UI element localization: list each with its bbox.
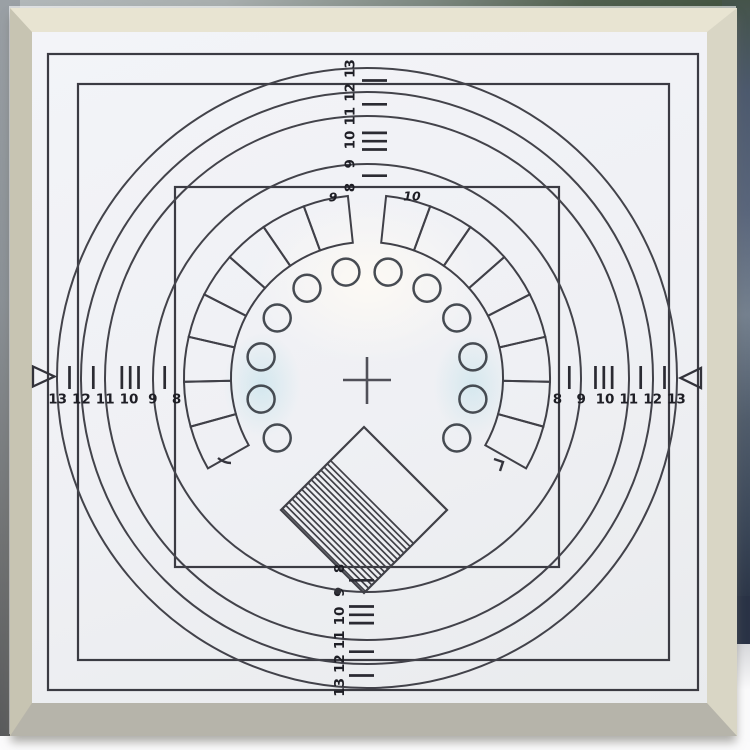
scale-number: 11	[343, 107, 359, 126]
scale-number: 8	[343, 183, 359, 192]
wedge-segment	[204, 257, 265, 316]
scale-number: 8	[172, 392, 181, 408]
ring-dot	[248, 343, 275, 370]
wedge-segment	[184, 337, 235, 382]
ring-dot	[332, 259, 359, 286]
band-end-mark-right	[494, 459, 503, 471]
dot-ring	[248, 259, 487, 452]
wedge-segment	[264, 206, 320, 265]
ring-dot	[294, 275, 321, 302]
left-pointer-icon	[33, 367, 55, 387]
scale-number: 8	[553, 392, 562, 408]
wedge-segment	[469, 257, 530, 316]
ring-dot	[459, 343, 486, 370]
ring-dot	[264, 305, 291, 332]
scale-number: 13	[332, 678, 348, 697]
left-numbers: 1312111098	[48, 392, 181, 408]
registration-dot	[335, 588, 342, 595]
hatch-line	[268, 481, 462, 675]
ring-dot	[459, 386, 486, 413]
top-numbers: 1312111098	[343, 59, 359, 192]
ring-dot	[248, 386, 275, 413]
ring-dot	[414, 275, 441, 302]
bottom-ticks	[349, 580, 374, 675]
scale-number: 11	[96, 392, 115, 408]
left-ticks	[70, 366, 165, 389]
scale-number: 10	[120, 392, 139, 408]
right-numbers: 8910111213	[553, 392, 686, 408]
scale-number: 13	[343, 59, 359, 78]
scale-number: 8	[332, 564, 348, 573]
scale-bottom: 8910111213	[332, 564, 374, 697]
scale-number: 13	[667, 392, 686, 408]
top-ticks	[362, 81, 387, 176]
scale-number: 10	[596, 392, 615, 408]
diamond-hatching	[268, 398, 462, 688]
ring-dot	[264, 425, 291, 452]
center-crosshair	[343, 357, 391, 404]
wedge-segment	[184, 381, 236, 427]
scale-number: 10	[343, 131, 359, 150]
wedge-segment	[381, 196, 430, 250]
scale-right: 8910111213	[553, 366, 701, 408]
scale-number: 12	[332, 654, 348, 673]
hatch-line	[268, 404, 462, 598]
scale-top: 1312111098	[343, 59, 388, 192]
ring-dot	[443, 305, 470, 332]
scale-number: 12	[643, 392, 662, 408]
wedge-segment	[500, 337, 551, 382]
scale-number: 11	[332, 630, 348, 649]
hatch-line	[268, 468, 462, 662]
ring-dot	[443, 425, 470, 452]
scale-number: 10	[332, 607, 348, 626]
wedge-segment	[498, 381, 550, 427]
scale-number: 11	[619, 392, 638, 408]
right-ticks	[569, 366, 664, 389]
wedge-segment	[414, 206, 470, 265]
hatch-line	[268, 424, 462, 618]
test-chart-linework: 1312111098 8910111213 1312111098 8910111…	[0, 0, 750, 750]
hatch-line	[268, 462, 462, 656]
hatch-line	[268, 456, 462, 650]
scale-number: 9	[576, 392, 585, 408]
hatch-line	[268, 436, 462, 630]
hatch-line	[268, 411, 462, 605]
wedge-segment	[230, 227, 291, 288]
bottom-numbers: 8910111213	[332, 564, 348, 697]
wedge-segment	[444, 227, 505, 288]
scale-number: 9	[148, 392, 157, 408]
sector-label-9: 9	[329, 190, 338, 205]
scale-left: 1312111098	[33, 366, 181, 408]
sector-label-10: 10	[403, 189, 421, 204]
scale-number: 13	[48, 392, 67, 408]
scale-number: 9	[343, 159, 359, 168]
scale-number: 12	[343, 83, 359, 102]
scale-number: 12	[72, 392, 91, 408]
hatched-diamond	[268, 398, 462, 688]
ring-dot	[375, 259, 402, 286]
